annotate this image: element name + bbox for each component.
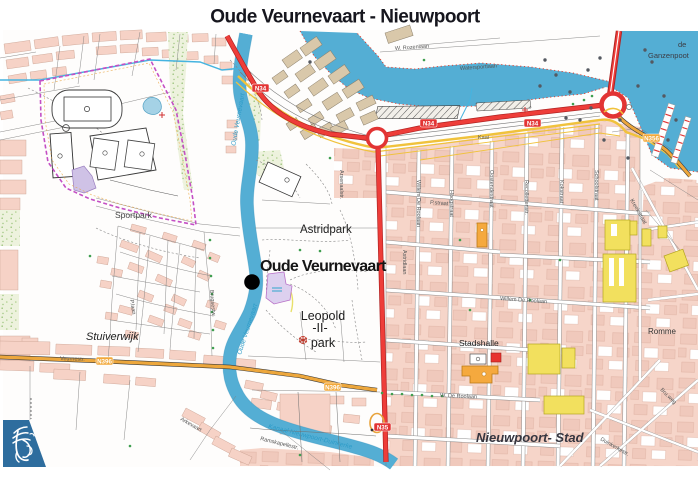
svg-text:N396: N396 — [325, 384, 340, 391]
svg-text:Oude Veurnevaart: Oude Veurnevaart — [260, 258, 387, 275]
svg-text:park: park — [311, 336, 336, 350]
svg-text:Nieuwpoort- Stad: Nieuwpoort- Stad — [476, 430, 585, 445]
svg-text:Kokstraat: Kokstraat — [558, 180, 564, 204]
svg-text:N396: N396 — [97, 358, 112, 365]
svg-text:Sportpark: Sportpark — [115, 210, 153, 220]
svg-text:de: de — [678, 40, 686, 49]
svg-text:N356: N356 — [644, 135, 659, 142]
svg-text:Ganzenpoot: Ganzenpoot — [648, 51, 690, 60]
svg-text:Schoolstraat: Schoolstraat — [593, 170, 599, 201]
svg-text:Arsenaalstr.: Arsenaalstr. — [338, 170, 344, 200]
svg-text:Veurnestr.: Veurnestr. — [60, 356, 85, 363]
svg-text:Astridpark: Astridpark — [300, 224, 352, 236]
svg-text:Stadshalle: Stadshalle — [459, 338, 499, 348]
svg-text:Stuiverwijk: Stuiverwijk — [86, 331, 139, 343]
svg-text:N34: N34 — [423, 120, 435, 127]
svg-text:Hoogstraat: Hoogstraat — [448, 190, 454, 217]
svg-text:Oostendestraat: Oostendestraat — [488, 170, 494, 208]
svg-text:Romme: Romme — [648, 327, 677, 336]
svg-text:N34: N34 — [255, 85, 267, 92]
svg-text:-II-: -II- — [312, 321, 327, 335]
svg-text:N34: N34 — [527, 120, 539, 127]
svg-text:N35: N35 — [377, 424, 389, 431]
svg-text:Astridlaan: Astridlaan — [401, 250, 407, 274]
svg-text:Kaai: Kaai — [478, 135, 489, 141]
svg-text:Oude Veurnevaart - Nieuwpoort: Oude Veurnevaart - Nieuwpoort — [210, 7, 481, 28]
svg-text:Willem De Roolaan: Willem De Roolaan — [415, 180, 421, 227]
svg-text:Recollettenstr.: Recollettenstr. — [523, 180, 529, 215]
